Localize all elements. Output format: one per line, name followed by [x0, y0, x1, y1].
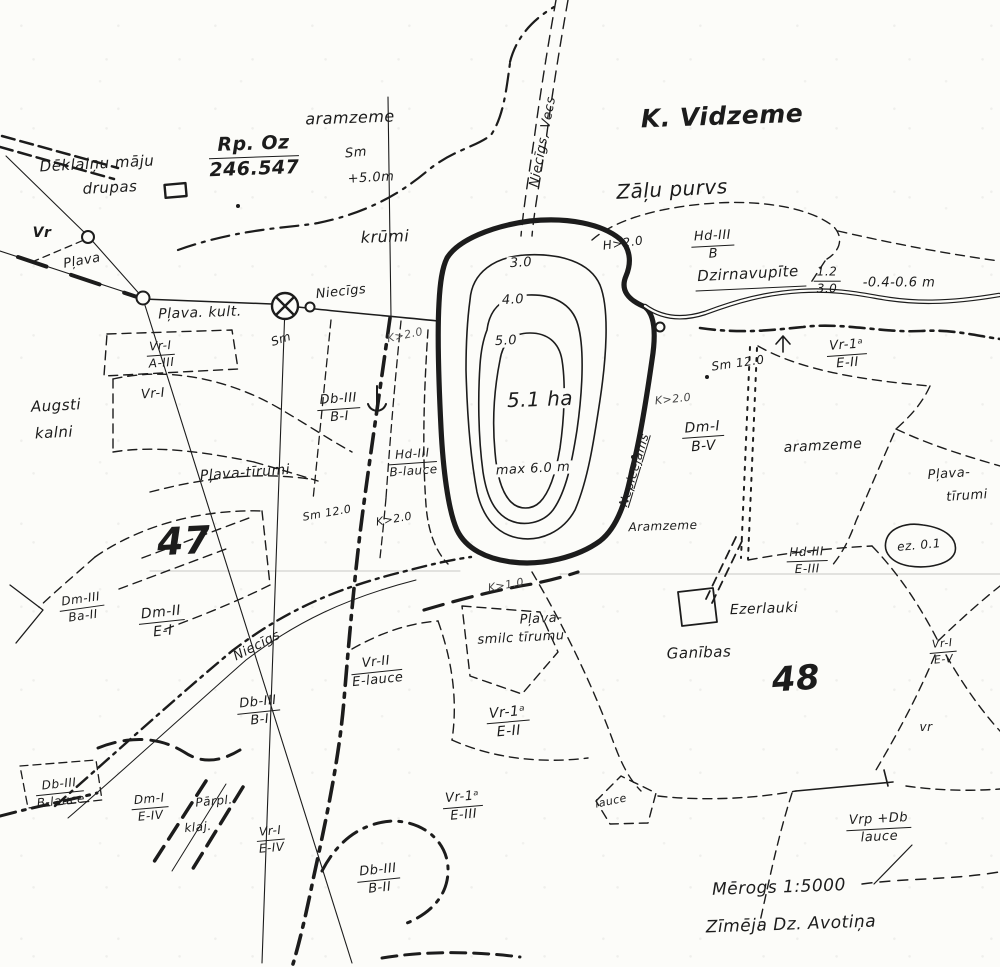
label-niecigs-west: Niecīgs [315, 283, 367, 301]
labels-layer: Dēklaiņu mājudrupasaramzemeSm+5.0mK. Vid… [0, 0, 1000, 967]
fraction-denominator: E-IV [257, 839, 287, 856]
fraction-hd3-e3: Hd-IIIE-III [786, 545, 828, 577]
fraction-denominator: E-II [487, 721, 531, 742]
fraction-denominator: 3.0 [814, 282, 841, 297]
fraction-denominator: 246.547 [209, 156, 300, 182]
fraction-db3-b2: Db-IIIB-II [356, 861, 403, 898]
fraction-flow: 1.23.0 [814, 266, 841, 297]
fraction-denominator: E-IV [132, 807, 170, 825]
fraction-vrp-db: Vrp +Dblauce [846, 811, 913, 847]
survey-map: Dēklaiņu mājudrupasaramzemeSm+5.0mK. Vid… [0, 0, 1000, 967]
label-klaj: klaj. [184, 820, 212, 834]
label-plava-se-2: tīrumi [946, 488, 988, 504]
label-dzirnavupite: Dzirnavupīte [697, 264, 799, 284]
fraction-denominator: B-I [317, 408, 361, 427]
label-parcel-48: 48 [771, 660, 822, 697]
fraction-dm1-e4: Dm-IE-IV [130, 791, 169, 825]
fraction-vr1a-e2-ne: Vr-1ᵃE-II [826, 337, 868, 373]
label-zalu-purvs: Zāļu purvs [616, 176, 728, 202]
fraction-denominator: B [691, 245, 735, 263]
label-credit: Zīmēja Dz. Avotiņa [706, 914, 877, 937]
fraction-denominator: B-II [357, 878, 402, 898]
label-k20-faint: K>2.0 [386, 326, 424, 344]
fraction-db3-blauce: Db-IIIB-lauce [34, 775, 85, 810]
label-deklaini-maju: Dēklaiņu māju [39, 154, 154, 175]
label-krumi: krūmi [360, 228, 409, 246]
label-contour-3: 3.0 [507, 256, 536, 270]
fraction-hd3-b: Hd-IIIB [691, 228, 736, 263]
label-vr-point: Vr [33, 226, 52, 240]
fraction-vr1a-e2-center: Vr-1ᵃE-II [485, 703, 530, 742]
fraction-denominator: E-V [930, 651, 958, 667]
fraction-denominator: E-III [443, 806, 484, 825]
label-lake-area: 5.1 ha [504, 388, 577, 411]
label-plava-se-1: Pļava- [927, 466, 971, 482]
label-niecigs-vecs: Niecīgs, Vecs [528, 96, 558, 189]
label-ganibas: Ganības [666, 644, 731, 661]
fraction-rp-oz: Rp. Oz246.547 [208, 132, 300, 182]
label-sm-mill: Sm [269, 330, 292, 348]
fraction-denominator: E-III [787, 561, 828, 577]
label-aramzeme-east: aramzeme [783, 437, 862, 455]
label-plus-5m: +5.0m [347, 170, 394, 185]
fraction-numerator: Hd-III [786, 545, 827, 562]
label-plava-nw: Pļava [62, 251, 101, 270]
fraction-vr1-e5: Vr-IE-V [928, 637, 957, 667]
label-plava-kult: Pļava. kult. [158, 305, 242, 322]
fraction-vr1a-e3: Vr-1ᵃE-III [442, 789, 485, 825]
fraction-db3-b1-north: Db-IIIB-I [316, 391, 362, 427]
fraction-vr1-a3: Vr-IA-III [146, 339, 176, 371]
fraction-denominator: B-V [682, 436, 725, 456]
label-contour-5: 5.0 [492, 334, 521, 348]
fraction-vr2-elauce: Vr-IIE-lauce [350, 653, 405, 691]
fraction-denominator: E-I [139, 620, 187, 642]
label-contour-4: 4.0 [499, 293, 528, 307]
label-k20-west: K>2.0 [375, 510, 413, 527]
label-kalni: kalni [35, 425, 74, 442]
label-drupas: drupas [82, 179, 137, 197]
label-ez-01: ez. 0.1 [897, 537, 942, 553]
fraction-denominator: E-II [827, 354, 868, 373]
label-vr1-left: Vr-I [140, 386, 165, 401]
fraction-denominator: lauce [846, 828, 912, 847]
label-plava-tirumi-west: Pļava-tīrumi [199, 463, 290, 483]
label-sm12-west: Sm 12.0 [302, 503, 352, 522]
label-aramzeme-south: Aramzeme [628, 519, 697, 533]
fraction-denominator: A-III [147, 355, 176, 372]
label-h20-purvs: H>2.0 [602, 234, 644, 252]
label-scale: Mērogs 1:5000 [712, 877, 846, 899]
label-niecigs-south: Niecīgs [231, 629, 282, 664]
fraction-numerator: 1.2 [814, 266, 841, 282]
fraction-dm1-bv: Dm-IB-V [681, 418, 725, 456]
label-plava-smilc-2: smilc tīrumu [477, 629, 565, 647]
label-parpl: Pārpl. [195, 793, 233, 808]
fraction-numerator: Rp. Oz [208, 132, 299, 159]
label-aramzeme-north: aramzeme [305, 108, 395, 127]
fraction-db3-b1-south: Db-IIIB-I [236, 693, 283, 730]
fraction-denominator: B-I [237, 710, 282, 730]
label-nepieejams: Nepieejams [617, 432, 651, 508]
fraction-dm3-ba2: Dm-IIIBa-II [58, 590, 107, 627]
fraction-hd3-blauce: Hd-IIIB-lauce [388, 446, 438, 480]
fraction-denominator: B-lauce [389, 462, 438, 480]
label-k-vidzeme: K. Vidzeme [640, 101, 803, 132]
label-k20-east: K>2.0 [654, 392, 691, 407]
label-sm12-east: Sm 12.0 [711, 353, 765, 372]
label-ezerlauki: Ezerlauki [730, 601, 799, 617]
label-sm-north: Sm [345, 146, 368, 161]
label-vr-se: vr [919, 721, 932, 733]
fraction-vr1-e4: Vr-IE-IV [256, 824, 287, 857]
label-k10: K>1.0 [487, 576, 525, 593]
label-lauce-south: lauce [594, 792, 628, 809]
label-max-depth: max 6.0 m [492, 460, 573, 477]
label-parcel-47: 47 [156, 521, 212, 562]
fraction-dm2-e1: Dm-IIE-I [137, 602, 187, 642]
label-plava-smilc-1: Pļava- [519, 611, 562, 626]
label-augsti: Augsti [31, 397, 82, 415]
label-depth-note: -0.4-0.6 m [863, 277, 936, 290]
